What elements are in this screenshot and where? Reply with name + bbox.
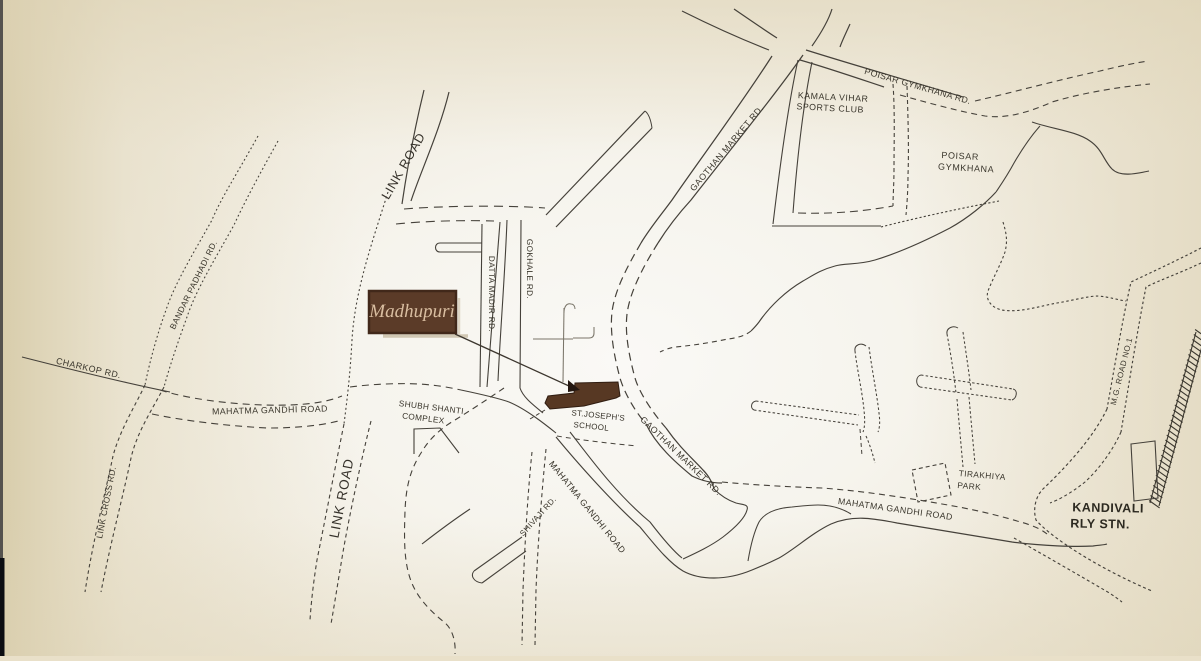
svg-text:RLY STN.: RLY STN. bbox=[1070, 516, 1130, 531]
svg-text:GOKHALE RD.: GOKHALE RD. bbox=[525, 239, 534, 299]
svg-text:PARK: PARK bbox=[957, 480, 982, 492]
svg-text:POISAR: POISAR bbox=[941, 150, 979, 162]
svg-text:Madhupuri: Madhupuri bbox=[368, 301, 455, 322]
svg-text:KANDIVALI: KANDIVALI bbox=[1072, 500, 1144, 515]
svg-text:DATTA MADIR RD.: DATTA MADIR RD. bbox=[487, 256, 496, 332]
